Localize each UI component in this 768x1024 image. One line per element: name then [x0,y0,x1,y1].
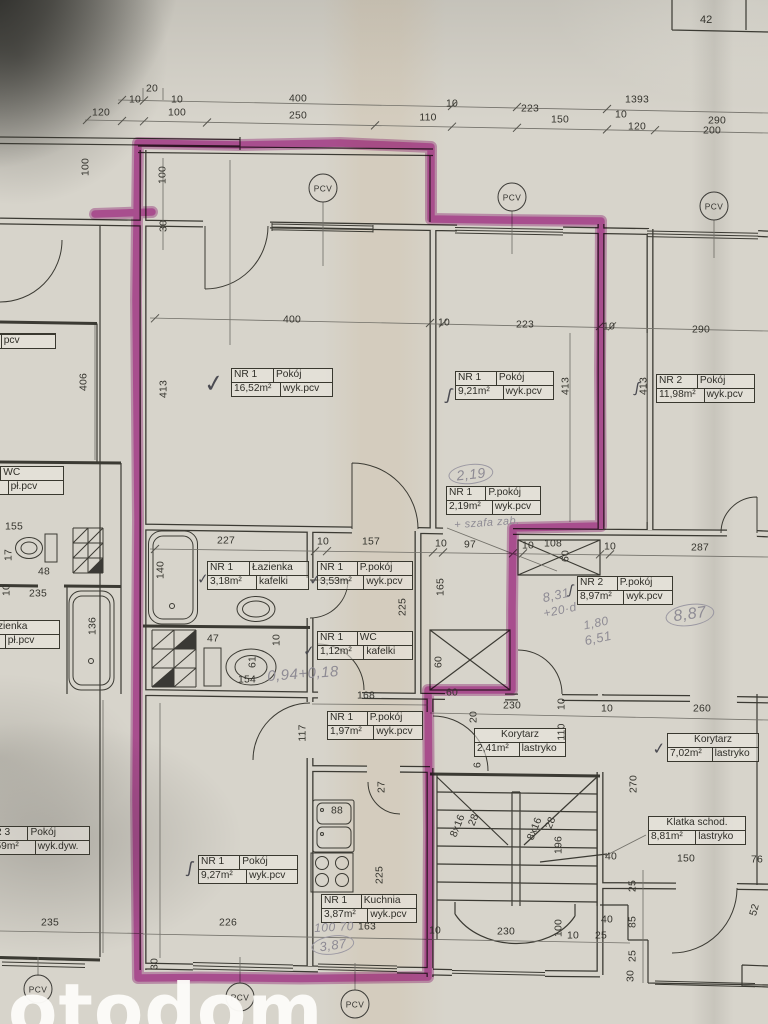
otodom-watermark: otodom [8,968,323,1024]
sheet-number: 42 [700,14,712,26]
plumbing-fixtures [16,528,355,892]
door-swings [0,226,757,953]
floorplan-photo: NR 1Pokój16,52m²wyk.pcvNR 1Pokój9,21m²wy… [0,0,768,1024]
window-symbols [2,223,758,987]
floor-plan-linework [0,0,768,1024]
